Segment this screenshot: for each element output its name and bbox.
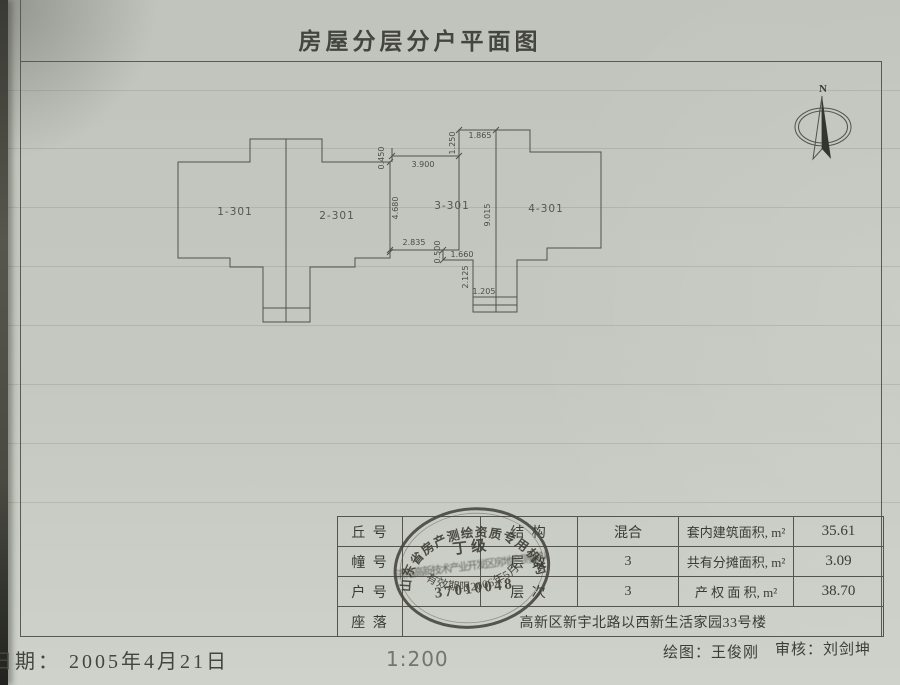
area-value: 35.61 [794, 517, 884, 547]
dim-bottom-h1: 2.125 [461, 266, 470, 289]
dim-top-width: 1.865 [469, 131, 492, 140]
dim-left-wall: 4.680 [391, 197, 400, 220]
area-value: 3.09 [794, 547, 884, 577]
dim-left-offset: 0.450 [377, 147, 386, 170]
drafter-text: 绘图：王俊刚 [663, 641, 759, 662]
north-arrow-icon: N [795, 83, 851, 159]
mid-value: 3 [578, 547, 679, 577]
area-value: 38.70 [794, 577, 884, 607]
dim-bottom-gap: 2.835 [403, 238, 426, 247]
unit-label-2-301: 2-301 [319, 210, 355, 222]
north-needle-fill [822, 96, 831, 159]
area-label: 套内建筑面积, m² [679, 517, 794, 547]
left-building-outline [178, 139, 390, 322]
mid-value: 3 [578, 577, 679, 607]
scale-text: 1:200 [386, 647, 449, 671]
official-stamp: 山东省房产测绘资质专用机构 丁 级 济南高新技术产业开发区房地产测绘队 3701… [381, 494, 564, 644]
dim-notch-top: 1.250 [448, 132, 457, 155]
unit-label-1-301: 1-301 [217, 206, 253, 218]
dim-bottom-w2: 1.205 [473, 287, 496, 296]
dim-party-wall: 9.015 [483, 204, 492, 227]
mid-value: 混合 [578, 517, 679, 547]
dim-notch-small: 0.500 [433, 241, 442, 264]
area-label: 产 权 面 积, m² [679, 577, 794, 607]
unit-label-4-301: 4-301 [528, 203, 564, 215]
dim-bottom-w1: 1.660 [451, 250, 474, 259]
north-needle-outline [813, 96, 822, 159]
unit-label-3-301: 3-301 [434, 200, 470, 212]
scanned-document-page: 房屋分层分户平面图 0.450 3.900 1.250 1.865 4.680 … [0, 0, 900, 685]
dim-top-gap: 3.900 [412, 160, 435, 169]
date-text: 日期： 2005年4月21日 [0, 645, 229, 674]
area-label: 共有分摊面积, m² [679, 547, 794, 577]
reviewer-text: 审核：刘剑坤 [775, 638, 871, 659]
north-label: N [819, 83, 827, 95]
